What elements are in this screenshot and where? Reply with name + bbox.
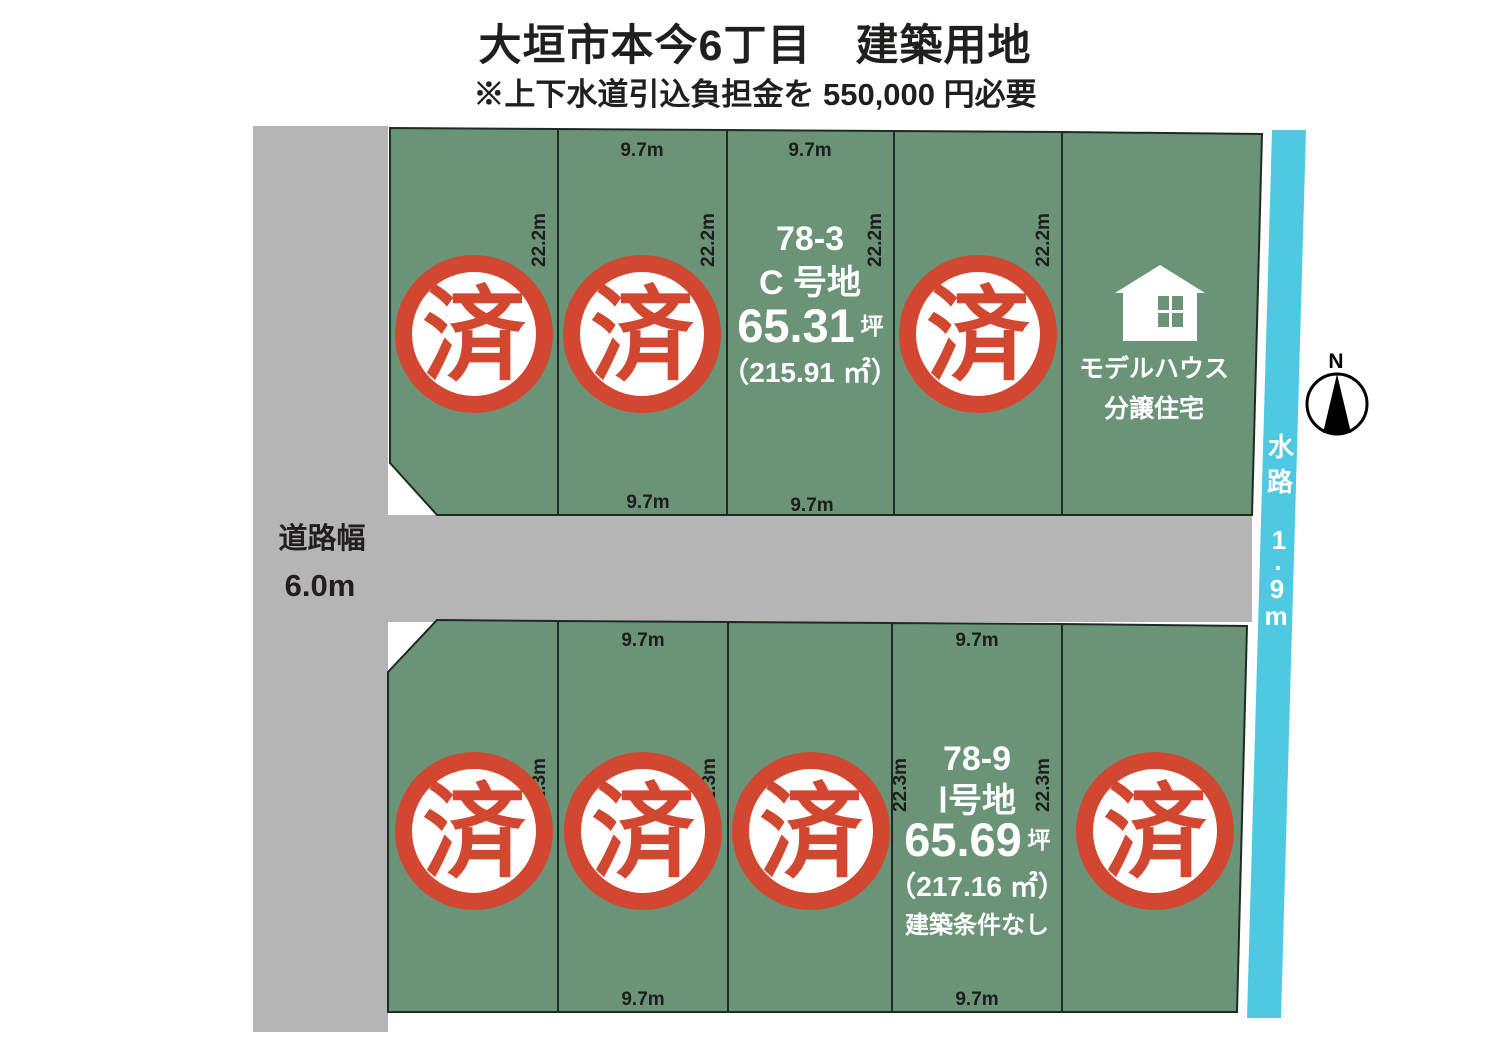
frontage-dim-label: 9.7m (955, 989, 998, 1010)
lot-i-note: 建築条件なし (905, 911, 1049, 939)
frontage-dim-label: 9.7m (626, 492, 669, 513)
sold-stamp: 済 (732, 752, 890, 910)
sold-stamp-char: 済 (423, 278, 527, 393)
lot-c-tsubo-unit: 坪 (861, 313, 884, 339)
lot-c-tsubo: 65.31 (737, 299, 855, 352)
lot-i-tsubo-unit: 坪 (1028, 827, 1051, 853)
sold-stamp-char: 済 (592, 775, 696, 890)
lot-i-tsubo: 65.69 (904, 813, 1022, 866)
page-title: 大垣市本今6丁目 建築用地 (479, 22, 1032, 70)
compass-north-label: N (1328, 350, 1343, 373)
depth-dim-label: 22.2m (865, 213, 886, 267)
sold-stamp: 済 (395, 752, 553, 910)
page-subtitle: ※上下水道引込負担金を 550,000 円必要 (473, 77, 1036, 112)
frontage-dim-label: 9.7m (621, 989, 664, 1010)
depth-dim-label: 22.3m (890, 758, 911, 812)
frontage-dim-label: 9.7m (788, 140, 831, 161)
sold-stamp: 済 (395, 255, 553, 413)
sold-stamp: 済 (1076, 752, 1234, 910)
frontage-dim-label: 9.7m (955, 630, 998, 651)
lot-c-name: C 号地 (759, 264, 861, 302)
depth-dim-label: 22.3m (1033, 758, 1054, 812)
depth-dim-label: 22.2m (1033, 213, 1054, 267)
site-plan-drawing: 大垣市本今6丁目 建築用地 ※上下水道引込負担金を 550,000 円必要 道路… (0, 0, 1500, 1061)
frontage-dim-label: 9.7m (621, 630, 664, 651)
water-channel-char-2: 路 (1267, 467, 1294, 497)
water-channel-char-5: 9 (1270, 574, 1284, 604)
lot-c-area: （215.91 ㎡） (721, 356, 898, 388)
model-house-line2: 分譲住宅 (1104, 394, 1204, 423)
depth-dim-label: 22.2m (529, 213, 550, 267)
road-width-label: 道路幅 (278, 522, 365, 555)
sold-stamp-char: 済 (1104, 775, 1208, 890)
sold-stamp-char: 済 (423, 775, 527, 890)
sold-stamp: 済 (563, 255, 721, 413)
compass: N (1307, 350, 1367, 434)
site-plan-flyer: 大垣市本今6丁目 建築用地 ※上下水道引込負担金を 550,000 円必要 道路… (0, 0, 1500, 1061)
lot-i-area: （217.16 ㎡） (888, 870, 1065, 902)
frontage-dim-label: 9.7m (790, 495, 833, 516)
water-channel-char-6: m (1264, 601, 1287, 631)
lot-i-number: 78-9 (943, 740, 1011, 778)
sold-stamp-char: 済 (760, 775, 864, 890)
water-channel-char-1: 水 (1268, 432, 1295, 462)
depth-dim-label: 22.2m (698, 213, 719, 267)
water-channel-char-4: . (1274, 546, 1281, 576)
sold-stamp-char: 済 (591, 278, 695, 393)
sold-stamp: 済 (564, 752, 722, 910)
horizontal-road (388, 515, 1252, 622)
model-house-line1: モデルハウス (1079, 354, 1229, 383)
lot-c-number: 78-3 (776, 220, 844, 258)
road-width-value: 6.0m (285, 568, 356, 603)
sold-stamp-char: 済 (927, 278, 1031, 393)
frontage-dim-label: 9.7m (620, 140, 663, 161)
sold-stamp: 済 (899, 255, 1057, 413)
